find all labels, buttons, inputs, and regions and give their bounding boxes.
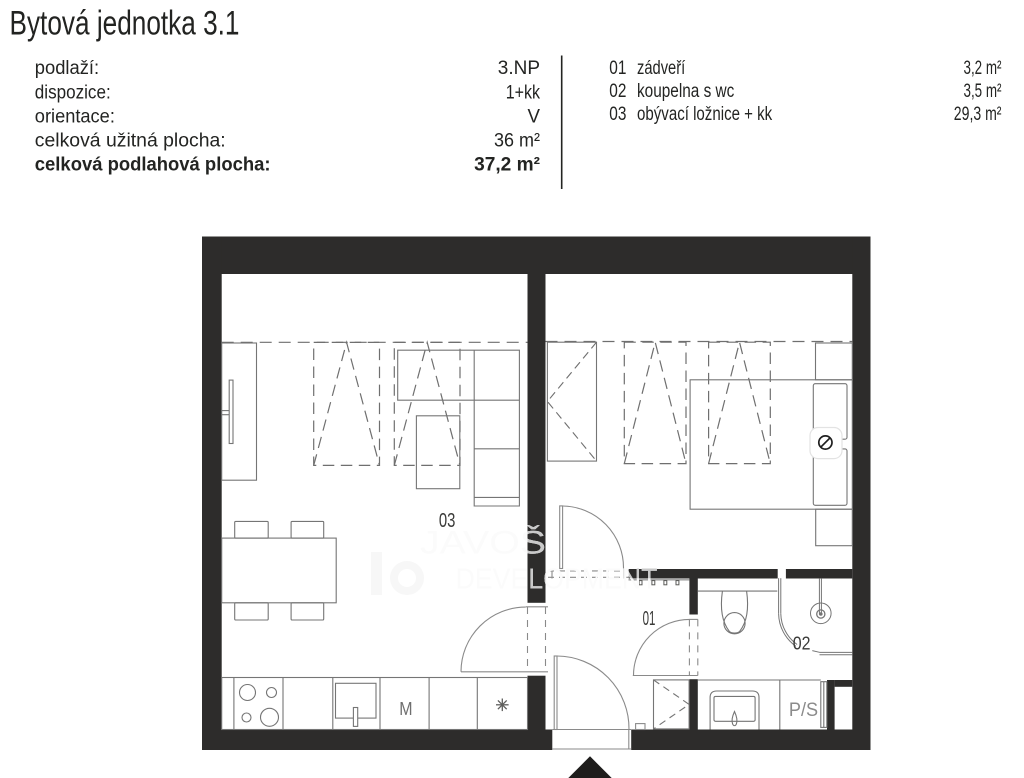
svg-text:3.NP: 3.NP [498, 58, 540, 79]
svg-text:29,3 m²: 29,3 m² [954, 104, 1002, 125]
svg-text:orientace:: orientace: [35, 107, 115, 128]
svg-text:02: 02 [793, 632, 811, 653]
svg-text:dispozice:: dispozice: [35, 83, 111, 104]
svg-text:celková podlahová plocha:: celková podlahová plocha: [35, 155, 271, 176]
svg-text:01: 01 [609, 58, 626, 79]
svg-text:celková užitná plocha:: celková užitná plocha: [35, 131, 226, 152]
svg-text:P/S: P/S [789, 699, 818, 721]
svg-text:3,5 m²: 3,5 m² [964, 81, 1002, 102]
svg-text:podlaží:: podlaží: [35, 58, 99, 79]
svg-text:01: 01 [643, 608, 656, 630]
svg-text:Bytová jednotka 3.1: Bytová jednotka 3.1 [10, 5, 240, 43]
svg-text:obývací ložnice + kk: obývací ložnice + kk [637, 104, 773, 125]
svg-text:M: M [399, 699, 412, 719]
svg-text:V: V [528, 107, 541, 128]
svg-text:02: 02 [609, 81, 626, 102]
svg-text:zádveří: zádveří [637, 58, 686, 79]
svg-text:JAVOŠ: JAVOŠ [420, 525, 546, 561]
svg-text:DEVELOPMENT: DEVELOPMENT [456, 564, 658, 596]
svg-text:3,2 m²: 3,2 m² [964, 58, 1002, 79]
svg-text:03: 03 [609, 104, 626, 125]
svg-text:1+kk: 1+kk [506, 83, 541, 104]
svg-text:36 m²: 36 m² [494, 131, 540, 152]
svg-text:koupelna s wc: koupelna s wc [637, 81, 734, 102]
svg-text:37,2 m²: 37,2 m² [474, 155, 540, 176]
